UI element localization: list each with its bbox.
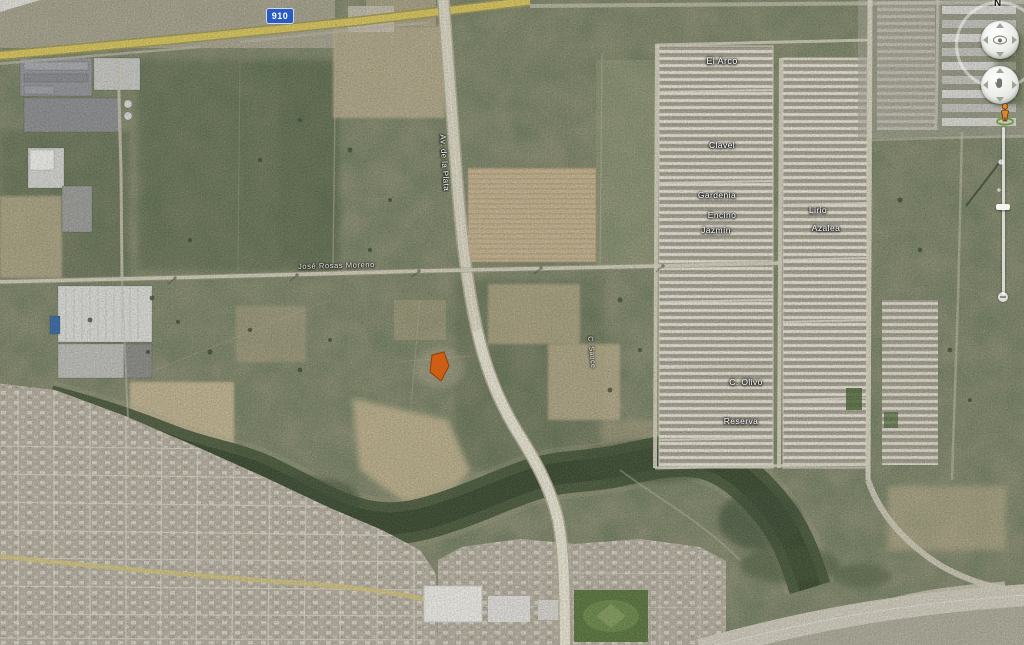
- zoom-out-button[interactable]: [998, 292, 1008, 302]
- parcel-marker[interactable]: [424, 348, 456, 386]
- satellite-map[interactable]: 910 Av. de la Plata José Rosas Moreno El…: [0, 0, 1024, 645]
- zoom-slider-handle[interactable]: [996, 204, 1010, 210]
- north-indicator: N: [994, 0, 1001, 9]
- zoom-slider[interactable]: [1002, 127, 1005, 295]
- parcel-polygon[interactable]: [430, 352, 449, 381]
- terrain-imagery: [0, 0, 1024, 645]
- chevron-up-icon[interactable]: [996, 23, 1004, 28]
- chevron-left-icon[interactable]: [983, 36, 988, 44]
- pegman-icon[interactable]: [995, 102, 1015, 126]
- eye-icon: [993, 36, 1007, 45]
- look-joystick[interactable]: [981, 21, 1019, 59]
- move-joystick[interactable]: [981, 66, 1019, 104]
- chevron-right-icon[interactable]: [1012, 36, 1017, 44]
- chevron-left-icon[interactable]: [983, 81, 988, 89]
- hand-icon: [994, 76, 1007, 94]
- chevron-right-icon[interactable]: [1012, 81, 1017, 89]
- chevron-down-icon[interactable]: [996, 52, 1004, 57]
- chevron-up-icon[interactable]: [996, 68, 1004, 73]
